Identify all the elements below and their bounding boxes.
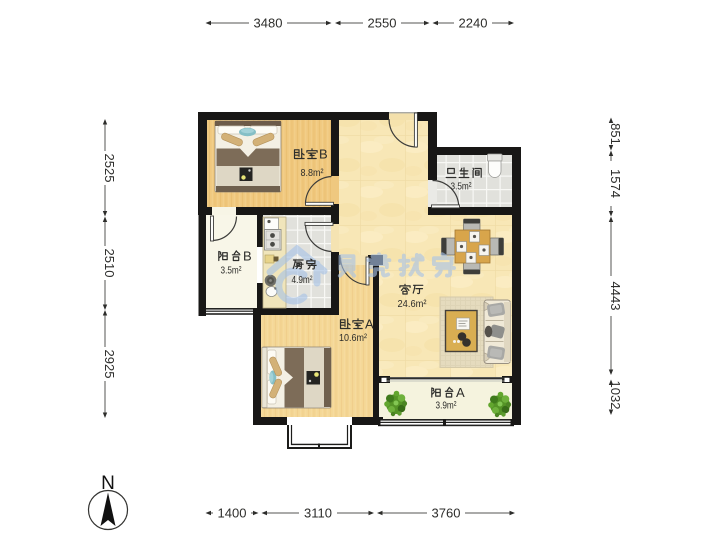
svg-text:2550: 2550 (368, 16, 397, 31)
svg-text:A: A (365, 317, 374, 332)
svg-text:24.6m²: 24.6m² (398, 298, 427, 310)
svg-text:10.6m²: 10.6m² (339, 332, 367, 344)
svg-text:B: B (319, 147, 328, 162)
svg-text:2510: 2510 (102, 249, 117, 278)
svg-text:2240: 2240 (459, 16, 488, 31)
svg-text:3110: 3110 (304, 506, 332, 521)
svg-text:1032: 1032 (608, 381, 623, 410)
svg-text:3.9m²: 3.9m² (436, 400, 457, 412)
svg-text:2925: 2925 (102, 350, 117, 379)
svg-text:3760: 3760 (432, 506, 461, 521)
svg-text:8.8m²: 8.8m² (301, 167, 324, 179)
svg-text:3.5m²: 3.5m² (221, 265, 242, 277)
svg-text:4.9m²: 4.9m² (292, 274, 313, 286)
svg-text:1574: 1574 (608, 169, 623, 198)
svg-text:4443: 4443 (608, 282, 623, 311)
svg-text:3480: 3480 (254, 16, 283, 31)
svg-text:1400: 1400 (218, 506, 247, 521)
svg-text:851: 851 (608, 123, 623, 145)
svg-text:3.5m²: 3.5m² (451, 181, 472, 193)
svg-text:2525: 2525 (102, 154, 117, 183)
svg-text:A: A (456, 385, 465, 400)
svg-text:B: B (243, 249, 252, 264)
